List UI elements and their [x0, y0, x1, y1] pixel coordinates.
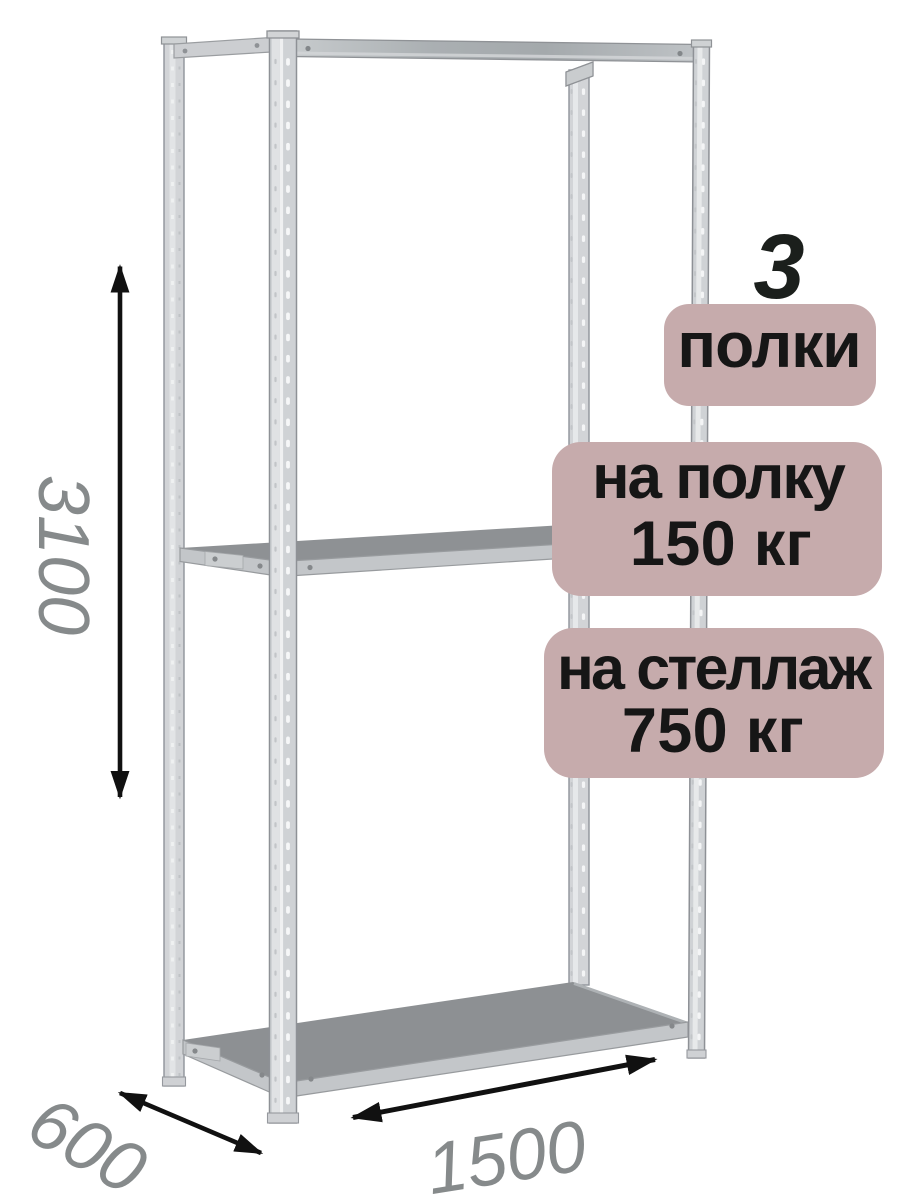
- svg-text:1500: 1500: [421, 1106, 592, 1200]
- svg-text:150 кг: 150 кг: [630, 509, 812, 579]
- svg-text:750 кг: 750 кг: [622, 696, 804, 766]
- svg-text:на стеллаж: на стеллаж: [557, 634, 873, 702]
- svg-text:3100: 3100: [23, 475, 103, 635]
- svg-text:на полку: на полку: [592, 443, 846, 512]
- svg-text:полки: полки: [677, 309, 860, 381]
- svg-text:3: 3: [753, 216, 804, 318]
